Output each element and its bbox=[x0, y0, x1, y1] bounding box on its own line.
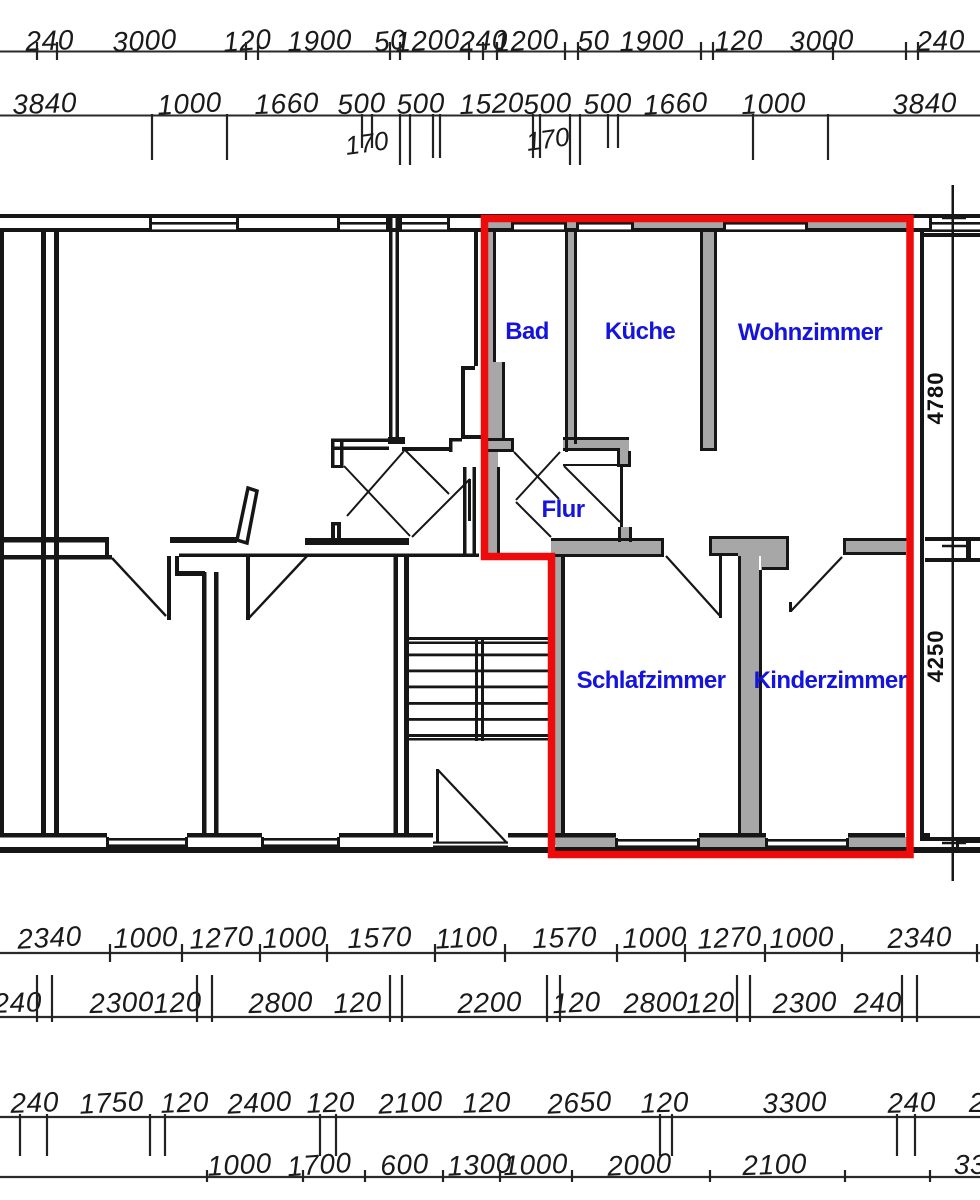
svg-text:600: 600 bbox=[379, 1148, 429, 1181]
svg-text:1200: 1200 bbox=[493, 23, 559, 57]
svg-text:1000: 1000 bbox=[622, 921, 688, 954]
svg-text:4250: 4250 bbox=[923, 630, 948, 683]
svg-text:Schlafzimmer: Schlafzimmer bbox=[577, 667, 726, 694]
svg-text:1520: 1520 bbox=[459, 87, 525, 120]
svg-text:2: 2 bbox=[968, 1087, 980, 1118]
svg-text:500: 500 bbox=[522, 87, 572, 120]
svg-text:2300: 2300 bbox=[771, 986, 838, 1019]
svg-text:Flur: Flur bbox=[542, 496, 585, 523]
svg-text:3840: 3840 bbox=[892, 87, 958, 120]
svg-text:170: 170 bbox=[343, 125, 391, 161]
svg-text:1660: 1660 bbox=[642, 86, 708, 120]
svg-text:3000: 3000 bbox=[111, 23, 177, 57]
svg-text:120: 120 bbox=[152, 986, 202, 1019]
svg-text:2100: 2100 bbox=[376, 1085, 443, 1119]
svg-text:Wohnzimmer: Wohnzimmer bbox=[738, 319, 882, 346]
svg-text:2800: 2800 bbox=[622, 986, 689, 1019]
svg-text:500: 500 bbox=[396, 87, 446, 120]
svg-text:Kinderzimmer: Kinderzimmer bbox=[754, 667, 907, 694]
svg-text:240: 240 bbox=[24, 24, 75, 57]
svg-text:120: 120 bbox=[462, 1086, 512, 1119]
svg-text:120: 120 bbox=[332, 986, 382, 1019]
svg-text:120: 120 bbox=[222, 23, 273, 57]
svg-text:3300: 3300 bbox=[762, 1086, 828, 1119]
svg-text:1660: 1660 bbox=[254, 87, 320, 120]
svg-text:240: 240 bbox=[9, 1086, 60, 1119]
svg-text:1100: 1100 bbox=[434, 920, 498, 954]
svg-text:1000: 1000 bbox=[503, 1148, 569, 1181]
svg-text:1270: 1270 bbox=[696, 920, 762, 954]
svg-text:2340: 2340 bbox=[886, 921, 953, 954]
svg-text:1900: 1900 bbox=[619, 24, 685, 57]
svg-text:120: 120 bbox=[640, 1086, 690, 1119]
svg-text:3840: 3840 bbox=[12, 87, 78, 120]
svg-text:33: 33 bbox=[954, 1149, 980, 1180]
svg-text:2400: 2400 bbox=[225, 1085, 292, 1119]
svg-text:170: 170 bbox=[524, 121, 572, 157]
svg-text:1900: 1900 bbox=[287, 24, 353, 57]
svg-text:2100: 2100 bbox=[741, 1148, 808, 1181]
svg-text:120: 120 bbox=[160, 1086, 210, 1119]
svg-text:2000: 2000 bbox=[605, 1147, 672, 1181]
svg-text:1000: 1000 bbox=[113, 921, 179, 954]
svg-text:1700: 1700 bbox=[286, 1147, 353, 1182]
svg-text:2340: 2340 bbox=[15, 920, 82, 954]
svg-text:1000: 1000 bbox=[206, 1147, 272, 1181]
svg-text:1000: 1000 bbox=[262, 921, 328, 954]
svg-text:2650: 2650 bbox=[545, 1085, 612, 1119]
svg-text:50: 50 bbox=[577, 24, 611, 57]
svg-text:1000: 1000 bbox=[741, 87, 807, 120]
svg-text:1000: 1000 bbox=[156, 86, 222, 120]
svg-text:240: 240 bbox=[852, 986, 903, 1019]
svg-text:1570: 1570 bbox=[532, 921, 598, 954]
svg-text:2300: 2300 bbox=[88, 986, 155, 1019]
svg-text:2200: 2200 bbox=[456, 986, 523, 1019]
svg-text:Bad: Bad bbox=[505, 318, 549, 345]
svg-text:120: 120 bbox=[685, 986, 735, 1019]
svg-text:120: 120 bbox=[714, 24, 764, 57]
svg-text:4780: 4780 bbox=[923, 372, 948, 425]
svg-text:240: 240 bbox=[886, 1086, 937, 1119]
svg-text:120: 120 bbox=[306, 1086, 356, 1119]
svg-text:1750: 1750 bbox=[78, 1085, 144, 1119]
svg-text:240: 240 bbox=[915, 24, 966, 57]
svg-text:Küche: Küche bbox=[605, 318, 676, 345]
svg-text:1270: 1270 bbox=[188, 920, 254, 954]
svg-text:1200: 1200 bbox=[394, 23, 460, 57]
svg-text:3000: 3000 bbox=[789, 24, 855, 57]
svg-text:1570: 1570 bbox=[347, 921, 413, 954]
svg-text:2800: 2800 bbox=[247, 986, 314, 1019]
svg-text:1000: 1000 bbox=[769, 921, 835, 954]
